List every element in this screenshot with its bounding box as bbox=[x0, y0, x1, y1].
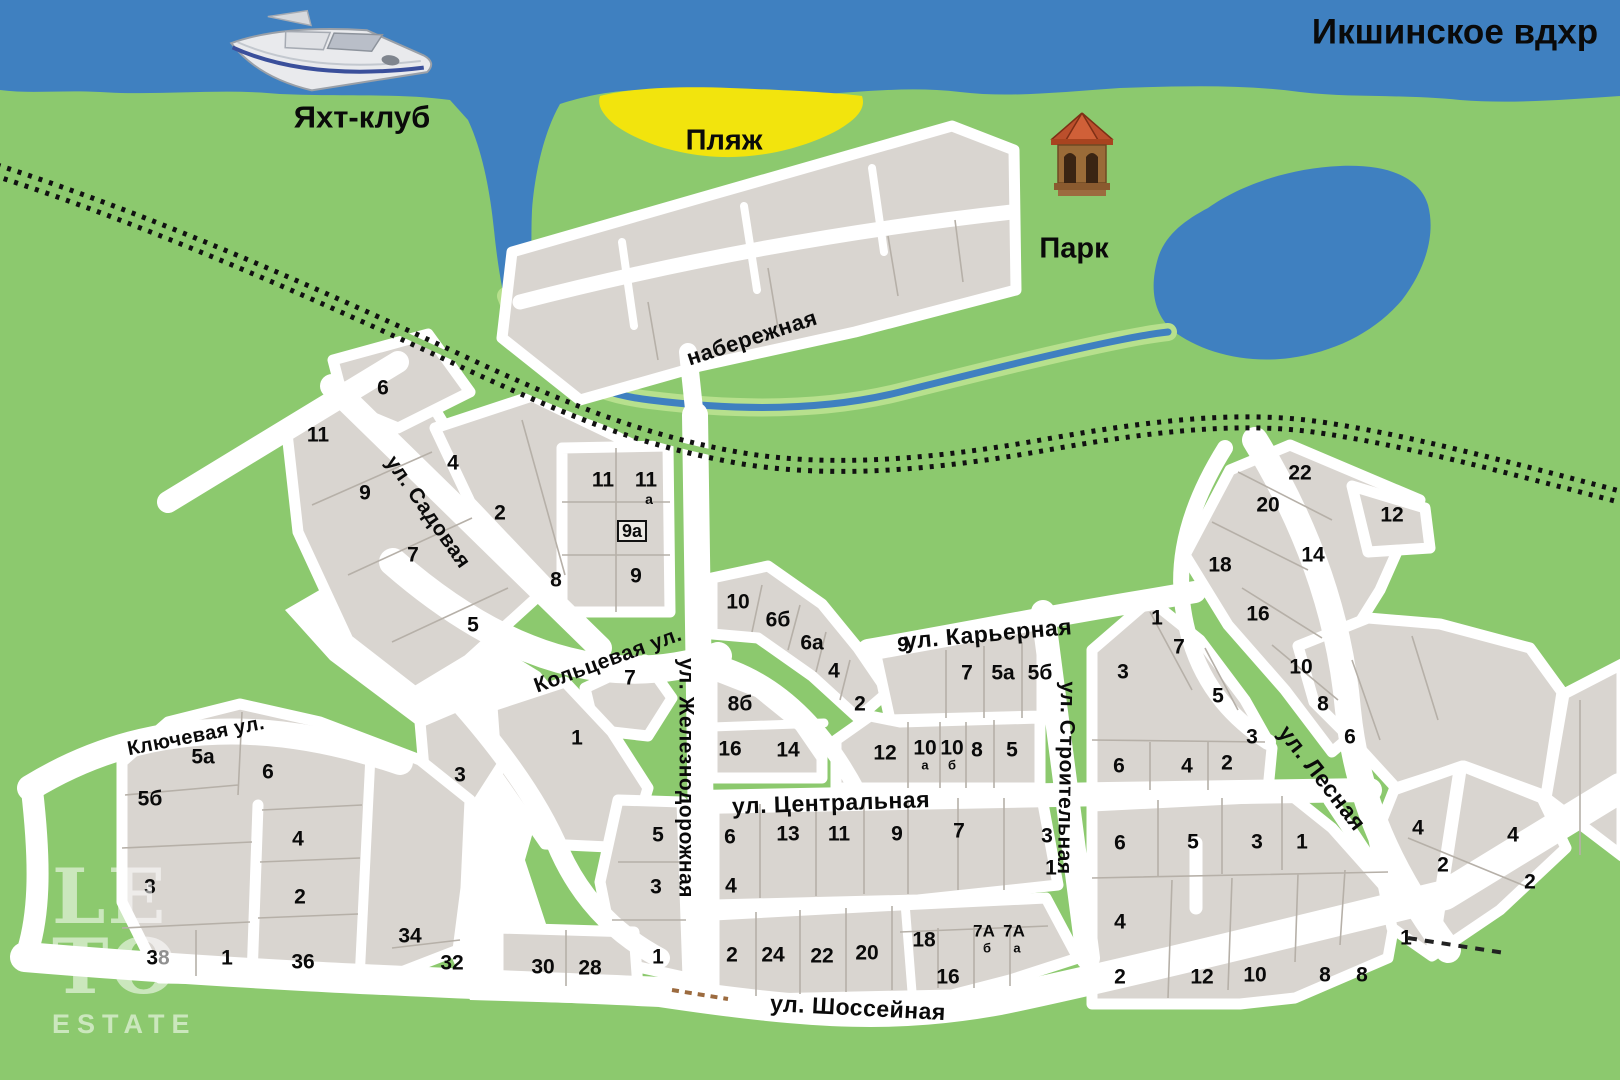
plot-number: 3 bbox=[454, 765, 466, 786]
map-labels: 6119754281111а9а9713531106б6а42975а5б8б1… bbox=[0, 0, 1620, 1080]
plot-number: 1 bbox=[652, 947, 664, 968]
plot-number: 4 bbox=[1507, 825, 1519, 846]
plot-number: 12 bbox=[1380, 505, 1403, 526]
plot-number: 5 bbox=[1187, 832, 1199, 853]
plot-number: 8 bbox=[971, 740, 983, 761]
plot-number: 3 bbox=[1251, 832, 1263, 853]
plot-number: 2 bbox=[726, 945, 738, 966]
plot-number: 11 bbox=[592, 470, 614, 491]
plot-number: 8 bbox=[550, 570, 562, 591]
watermark-line: ESTATE bbox=[52, 1012, 197, 1037]
plot-number: 4 bbox=[725, 876, 737, 897]
plot-number: 5б bbox=[1028, 663, 1053, 684]
plot-number: 18 bbox=[1208, 555, 1231, 576]
plot-number: 2 bbox=[854, 694, 866, 715]
plot-number: 1 bbox=[221, 948, 233, 969]
street-label: ул. Центральная bbox=[732, 788, 931, 818]
plot-number: 4 bbox=[1181, 756, 1193, 777]
plot-number: 1 bbox=[1296, 832, 1308, 853]
plot-number: 16 bbox=[1246, 604, 1269, 625]
plot-number: 4 bbox=[447, 453, 459, 474]
plot-number: 10 bbox=[913, 738, 936, 759]
plot-number: 2 bbox=[294, 887, 306, 908]
plot-number: 14 bbox=[776, 740, 799, 761]
plot-number: 1 bbox=[1400, 928, 1412, 949]
plot-number: 11 bbox=[307, 425, 329, 446]
plot-number: 9 bbox=[891, 824, 903, 845]
plot-number: 8 bbox=[1317, 694, 1329, 715]
map-canvas: 6119754281111а9а9713531106б6а42975а5б8б1… bbox=[0, 0, 1620, 1080]
plot-number: 30 bbox=[531, 957, 554, 978]
plot-number: 6 bbox=[724, 827, 736, 848]
plot-number: 10 bbox=[726, 592, 749, 613]
plot-number: 16 bbox=[936, 967, 959, 988]
plot-number: 20 bbox=[1256, 495, 1279, 516]
plot-number: 10 bbox=[1289, 657, 1312, 678]
plot-number: 5 bbox=[1006, 740, 1018, 761]
plot-number: 4 bbox=[828, 661, 840, 682]
plot-number: 5 bbox=[1212, 686, 1224, 707]
plot-number: 9а bbox=[617, 520, 647, 542]
landmark-label: Пляж bbox=[686, 127, 763, 156]
plot-number: 5 bbox=[652, 825, 664, 846]
plot-number: 7 bbox=[407, 545, 419, 566]
plot-number: 22 bbox=[810, 946, 833, 967]
street-label: Кольцевая ул. bbox=[531, 624, 684, 697]
plot-number: 1 bbox=[1151, 608, 1163, 629]
plot-number: 22 bbox=[1288, 463, 1311, 484]
plot-number: 5 bbox=[467, 615, 479, 636]
plot-number: 34 bbox=[398, 926, 421, 947]
plot-number: б bbox=[983, 942, 991, 955]
plot-number: б bbox=[948, 759, 956, 772]
plot-number: 6 bbox=[377, 378, 389, 399]
plot-number: 6 bbox=[1114, 833, 1126, 854]
plot-number: 3 bbox=[1041, 826, 1053, 847]
plot-number: 6 bbox=[1113, 756, 1125, 777]
plot-number: 2 bbox=[1437, 855, 1449, 876]
plot-number: 32 bbox=[440, 953, 463, 974]
plot-number: а bbox=[645, 492, 653, 506]
watermark-line: TO bbox=[52, 932, 197, 1002]
plot-number: 7 bbox=[624, 668, 636, 689]
plot-number: 6а bbox=[800, 633, 823, 654]
plot-number: 2 bbox=[494, 503, 506, 524]
plot-number: 13 bbox=[776, 824, 799, 845]
plot-number: 5б bbox=[138, 789, 163, 810]
plot-number: 4 bbox=[1412, 818, 1424, 839]
plot-number: 10 bbox=[1243, 965, 1266, 986]
plot-number: 7А bbox=[973, 923, 995, 940]
plot-number: 7 bbox=[961, 663, 973, 684]
plot-number: 28 bbox=[578, 958, 601, 979]
street-label: ул. Шоссейная bbox=[770, 992, 947, 1024]
plot-number: 9 bbox=[630, 566, 642, 587]
street-label: ул. Карьерная bbox=[903, 615, 1073, 653]
plot-number: 5а bbox=[991, 663, 1014, 684]
plot-number: 12 bbox=[873, 743, 896, 764]
plot-number: 6б bbox=[766, 610, 791, 631]
plot-number: 4 bbox=[292, 829, 304, 850]
plot-number: 8 bbox=[1356, 965, 1368, 986]
landmark-label: Икшинское вдхр bbox=[1312, 15, 1598, 50]
plot-number: а bbox=[921, 759, 928, 772]
plot-number: 9 bbox=[359, 483, 371, 504]
plot-number: а bbox=[1013, 942, 1020, 955]
street-label: ул. Садовая bbox=[382, 452, 475, 572]
plot-number: 20 bbox=[855, 943, 878, 964]
plot-number: 7 bbox=[1173, 637, 1185, 658]
street-label: набережная bbox=[684, 307, 820, 370]
plot-number: 3 bbox=[1246, 727, 1258, 748]
plot-number: 16 bbox=[718, 739, 741, 760]
watermark: LE TO ESTATE bbox=[52, 862, 197, 1037]
plot-number: 8б bbox=[728, 694, 753, 715]
plot-number: 5а bbox=[191, 747, 214, 768]
plot-number: 10 bbox=[940, 738, 963, 759]
plot-number: 7А bbox=[1003, 923, 1025, 940]
plot-number: 2 bbox=[1114, 967, 1126, 988]
street-label: ул. Строительная bbox=[1054, 681, 1078, 875]
plot-number: 3 bbox=[650, 877, 662, 898]
plot-number: 11 bbox=[828, 824, 850, 845]
landmark-label: Парк bbox=[1039, 235, 1108, 264]
plot-number: 12 bbox=[1190, 967, 1213, 988]
plot-number: 8 bbox=[1319, 965, 1331, 986]
landmark-label: Яхт-клуб bbox=[294, 102, 431, 133]
plot-number: 2 bbox=[1221, 753, 1233, 774]
plot-number: 2 bbox=[1524, 872, 1536, 893]
plot-number: 24 bbox=[761, 945, 784, 966]
plot-number: 3 bbox=[1117, 662, 1129, 683]
plot-number: 6 bbox=[262, 762, 274, 783]
plot-number: 18 bbox=[912, 930, 935, 951]
plot-number: 7 bbox=[953, 821, 965, 842]
plot-number: 14 bbox=[1301, 545, 1324, 566]
plot-number: 4 bbox=[1114, 912, 1126, 933]
plot-number: 6 bbox=[1344, 727, 1356, 748]
street-label: ул. Железнодорожная bbox=[676, 658, 697, 898]
plot-number: 1 bbox=[571, 728, 583, 749]
plot-number: 11 bbox=[635, 470, 657, 491]
plot-number: 36 bbox=[291, 952, 314, 973]
